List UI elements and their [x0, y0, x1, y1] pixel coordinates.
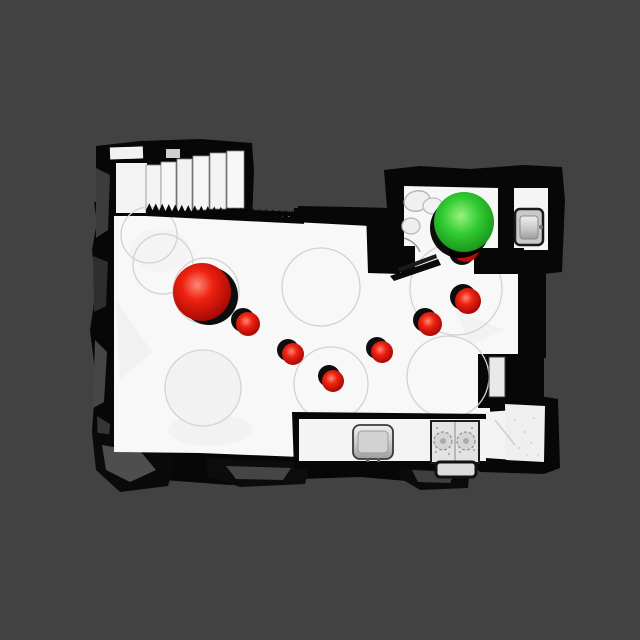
sphere-green-body[interactable]	[434, 192, 494, 252]
bathroom-sink	[515, 209, 543, 245]
floor-circle	[165, 350, 241, 426]
header-slot	[110, 146, 143, 159]
sphere-red-large-body[interactable]	[173, 263, 231, 321]
header-slot-small	[166, 149, 180, 158]
sphere-red-2-body[interactable]	[282, 343, 304, 365]
bathroom-right-bottom-wall	[512, 250, 549, 267]
stove-base	[436, 462, 476, 477]
counter-sink	[353, 425, 393, 462]
stair-landing	[116, 163, 147, 213]
wall-niche	[489, 357, 505, 397]
scene-viewport[interactable]	[0, 0, 640, 640]
sphere-red-5-body[interactable]	[418, 312, 442, 336]
sphere-red-3-body[interactable]	[322, 370, 344, 392]
scene-stage	[0, 0, 640, 640]
sphere-red-4-body[interactable]	[371, 341, 393, 363]
sphere-red-6-body[interactable]	[455, 288, 481, 314]
counter-stove	[431, 421, 479, 477]
sphere-red-1-body[interactable]	[236, 312, 260, 336]
